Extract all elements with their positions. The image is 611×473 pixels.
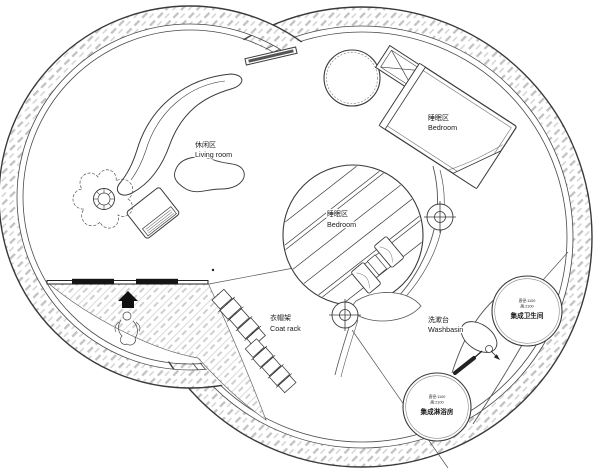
floor-plan-canvas: 直径:1100 高:2100 集成卫生间 直径:1100 高:2100 集成淋浴… (0, 0, 611, 473)
washbasin-label-en: Washbasin (428, 325, 463, 334)
plan-dot (212, 269, 214, 271)
bedroom-center-label-zh: 睡眠区 (327, 210, 348, 218)
living-room-label-en: Living room (195, 150, 232, 159)
bedroom-upper-label-zh: 睡眠区 (428, 114, 449, 122)
wall-lintel (72, 279, 114, 285)
toilet-pod-icon: 直径:1100 高:2100 集成卫生间 (492, 276, 562, 346)
terrace-wall (47, 279, 208, 285)
shower-pod-spec-diameter: 直径:1100 (429, 394, 446, 399)
toilet-pod-label: 集成卫生间 (510, 311, 544, 320)
round-table-icon (324, 50, 380, 106)
toilet-pod-spec-diameter: 直径:1100 (519, 298, 536, 303)
target-symbol-icon (424, 201, 456, 233)
toilet-pod-spec-height: 高:2100 (520, 304, 533, 309)
shower-pod-spec-height: 高:2100 (430, 400, 443, 405)
coffee-table-icon (174, 157, 244, 192)
washbasin-label-zh: 洗漱台 (428, 315, 449, 324)
living-room-label-zh: 休闲区 (195, 140, 216, 149)
circular-bed-icon (266, 151, 438, 316)
bedroom-upper-label-en: Bedroom (428, 123, 457, 132)
wall-lintel (136, 279, 178, 285)
floor-plan-svg: 直径:1100 高:2100 集成卫生间 直径:1100 高:2100 集成淋浴… (0, 0, 611, 473)
coat-rack-label-en: Coat rack (270, 324, 301, 333)
shower-pod-icon: 直径:1100 高:2100 集成淋浴房 (403, 373, 471, 441)
coat-rack-label-zh: 衣帽架 (270, 313, 291, 322)
shower-pod-label: 集成淋浴房 (420, 407, 454, 416)
bedroom-center-label-en: Bedroom (327, 220, 356, 229)
